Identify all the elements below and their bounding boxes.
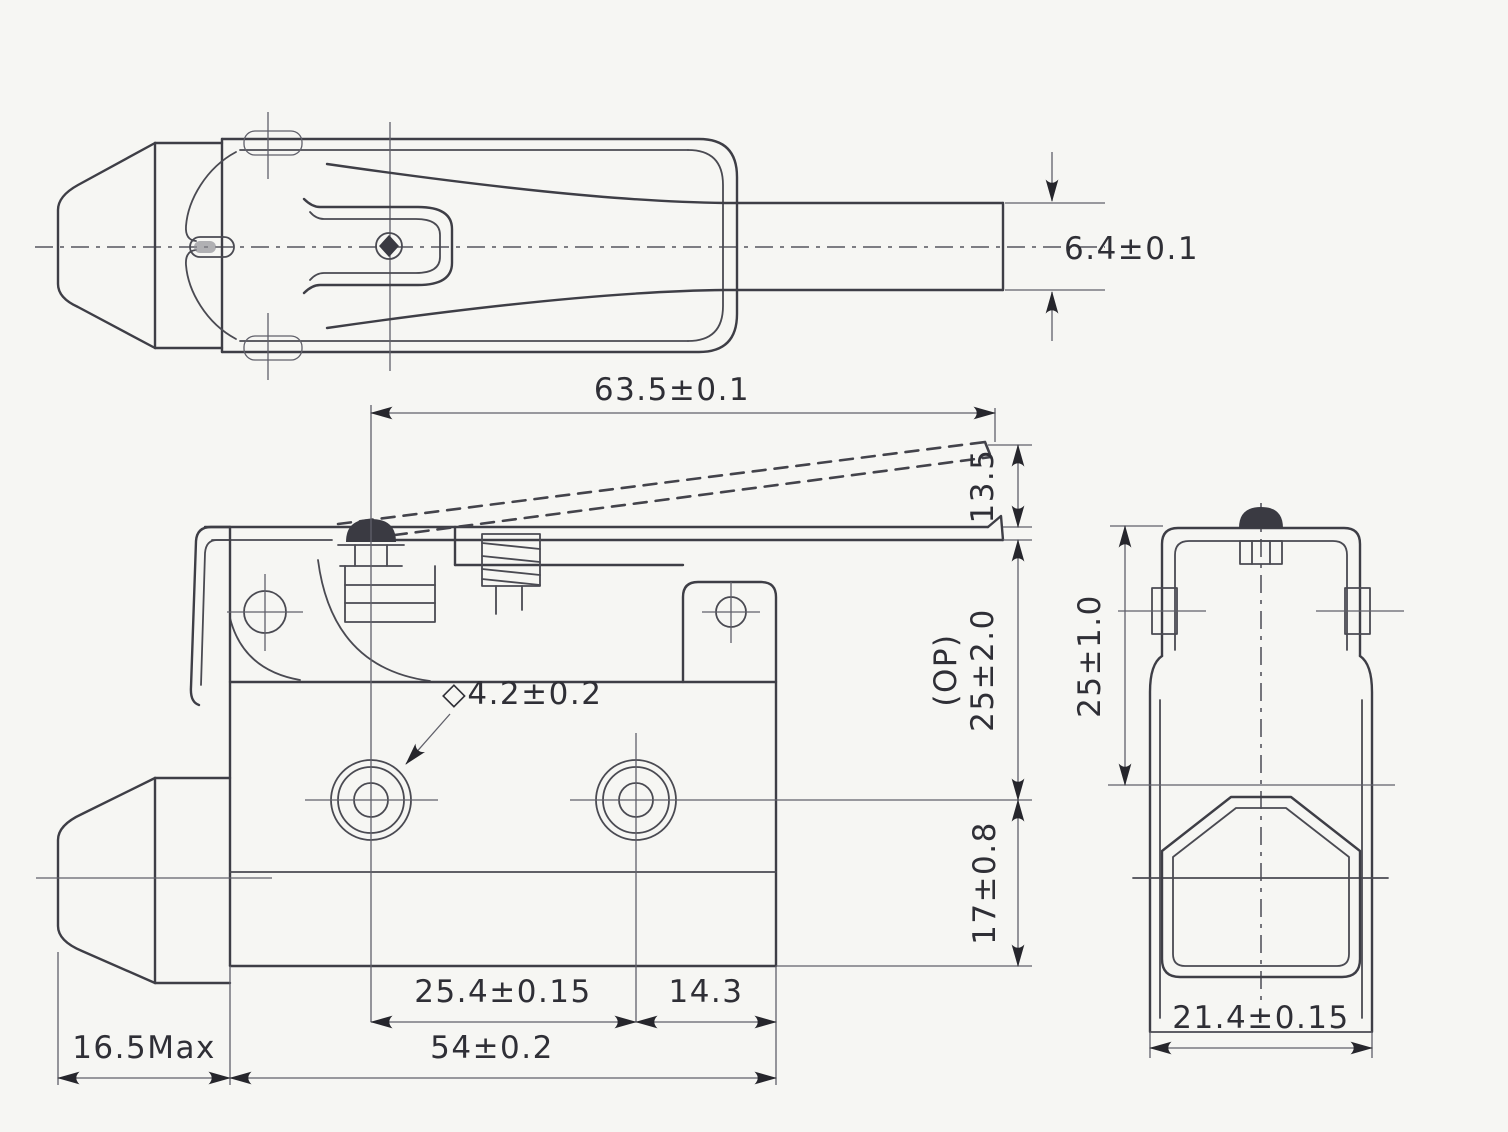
dim-op-prefix-label: (OP) <box>928 633 964 706</box>
front-lever-solid <box>205 516 1003 540</box>
front-body <box>230 527 776 966</box>
dim-hole-spacing: 25.4±0.15 <box>371 974 636 1022</box>
dim-side-height-label: 25±1.0 <box>1072 594 1108 718</box>
drawing-canvas: 6.4±0.1 <box>0 0 1508 1132</box>
dim-body-width: 54±0.2 <box>230 1030 776 1078</box>
dim-hole-edge-label: 14.3 <box>668 974 743 1010</box>
dim-body-width-label: 54±0.2 <box>430 1030 554 1066</box>
dim-free-position: 13.5 <box>965 445 1018 527</box>
dim-free-position-label: 13.5 <box>965 448 1001 523</box>
bottom-tab-slot <box>244 336 302 360</box>
dim-lever-width-label: 6.4±0.1 <box>1064 231 1199 267</box>
dim-lever-length: 63.5±0.1 <box>371 372 995 413</box>
front-boot <box>36 778 272 983</box>
dim-operating-height-label: 25±2.0 <box>965 608 1001 732</box>
dim-lever-length-label: 63.5±0.1 <box>594 372 750 408</box>
dim-side-depth: 21.4±0.15 <box>1150 1000 1372 1058</box>
dim-hole-to-edge: 14.3 <box>636 974 776 1022</box>
lever-top-view <box>327 164 1105 328</box>
pivot-rivet <box>338 519 435 622</box>
switch-dimension-drawing: 6.4±0.1 <box>0 0 1508 1132</box>
dim-operating-position: (OP) 25±2.0 <box>928 540 1018 800</box>
dim-hole-diameter: ◇4.2±0.2 <box>406 676 602 764</box>
front-view: 63.5±0.1 13.5 (OP) 25±2.0 17±0.8 ◇4.2±0.… <box>36 372 1032 1085</box>
hinge-bracket-hook <box>191 527 430 705</box>
dim-base-height-label: 17±0.8 <box>967 821 1003 945</box>
dim-lever-width: 6.4±0.1 <box>1052 152 1199 341</box>
dim-hole-diameter-label: ◇4.2±0.2 <box>442 676 602 712</box>
side-view: 25±1.0 21.4±0.15 <box>1072 503 1404 1058</box>
dim-base-height: 17±0.8 <box>967 800 1018 966</box>
top-tab-slot <box>244 131 302 155</box>
dim-boot-length-label: 16.5Max <box>72 1030 216 1066</box>
contact-spring-coil <box>482 534 540 614</box>
dim-hole-spacing-label: 25.4±0.15 <box>414 974 592 1010</box>
ear-hole <box>702 582 760 643</box>
front-lever-dashed <box>338 442 991 538</box>
top-view: 6.4±0.1 <box>35 112 1199 380</box>
dim-boot-length: 16.5Max <box>58 1030 230 1078</box>
hinge-clip <box>304 199 452 293</box>
dim-side-depth-label: 21.4±0.15 <box>1172 1000 1350 1036</box>
rivet-dome-side <box>1239 507 1283 528</box>
top-view-body <box>186 112 737 380</box>
